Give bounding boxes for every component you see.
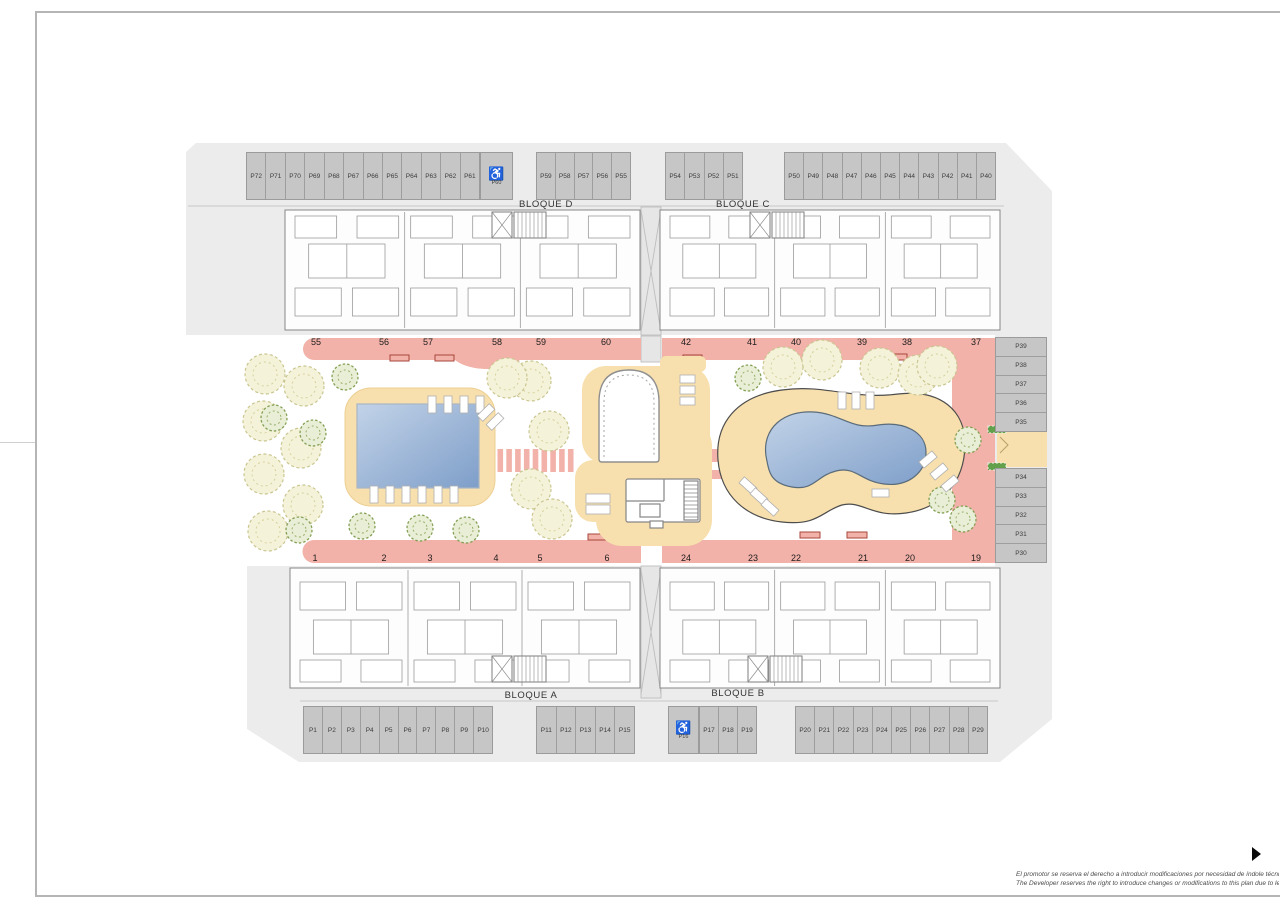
parking-stall-p71: P71 [265, 153, 284, 199]
sheet-frame-bottom [35, 895, 1280, 897]
parking-group-south-accessible: ♿P16 [668, 706, 699, 754]
parking-stall-label: P16 [679, 734, 689, 740]
bush-icon [929, 487, 955, 513]
parking-stall-p35: P35 [996, 412, 1046, 431]
parking-stall-p25: P25 [891, 707, 910, 753]
parking-stall-p46: P46 [861, 153, 880, 199]
parking-stall-p30: P30 [996, 543, 1046, 562]
plan-sheet-page: { "sheet": { "disclaimer_line1": "El pro… [0, 0, 1280, 907]
parking-group-south-small: P17P18P19 [699, 706, 757, 754]
parking-stall-p68: P68 [324, 153, 343, 199]
parking-stall-p20: P20 [796, 707, 814, 753]
unit-number-59: 59 [536, 337, 546, 347]
unit-number-22: 22 [791, 553, 801, 563]
parking-stall-p5: P5 [379, 707, 398, 753]
parking-stall-p23: P23 [853, 707, 872, 753]
arch-pavilion [599, 370, 659, 462]
parking-stall-p16: ♿P16 [669, 707, 698, 753]
bush-icon [735, 365, 761, 391]
wheelchair-icon: ♿ [675, 721, 691, 734]
unit-number-56: 56 [379, 337, 389, 347]
parking-stall-p53: P53 [684, 153, 703, 199]
building-bloque-b [660, 568, 1000, 688]
lounger-icon [852, 392, 860, 409]
unit-number-42: 42 [681, 337, 691, 347]
tree-icon [763, 347, 803, 387]
tree-icon [529, 411, 569, 451]
tree-icon [248, 511, 288, 551]
parking-stall-p29: P29 [968, 707, 987, 753]
walkway-south-west [303, 540, 642, 563]
parking-stall-p37: P37 [996, 375, 1046, 394]
parking-stall-p27: P27 [929, 707, 948, 753]
parking-stall-label: P60 [492, 180, 502, 186]
parking-stall-p1: P1 [304, 707, 322, 753]
parking-stall-p38: P38 [996, 356, 1046, 375]
unit-number-23: 23 [748, 553, 758, 563]
rect-pool [357, 404, 479, 488]
unit-number-6: 6 [604, 553, 609, 563]
bush-icon [453, 517, 479, 543]
parking-stall-p15: P15 [614, 707, 634, 753]
unit-number-39: 39 [857, 337, 867, 347]
parking-stall-p45: P45 [880, 153, 899, 199]
tree-icon [244, 454, 284, 494]
parking-stall-p34: P34 [996, 469, 1046, 487]
tree-icon [802, 340, 842, 380]
lounger-icon [586, 505, 610, 514]
parking-stall-p70: P70 [285, 153, 304, 199]
parking-stall-p39: P39 [996, 338, 1046, 356]
parking-group-east-lower: P34P33P32P31P30 [995, 468, 1047, 563]
parking-stall-p43: P43 [918, 153, 937, 199]
parking-stall-p26: P26 [910, 707, 929, 753]
parking-group-north-mid: P59P58P57P56P55 [536, 152, 631, 200]
sheet-frame-top [35, 11, 1280, 13]
lounger-icon [838, 392, 846, 409]
parking-stall-p9: P9 [454, 707, 473, 753]
parking-stall-p57: P57 [574, 153, 593, 199]
lounger-icon [680, 397, 695, 405]
parking-stall-p33: P33 [996, 487, 1046, 506]
unit-number-38: 38 [902, 337, 912, 347]
lounger-icon [428, 396, 436, 413]
parking-stall-p24: P24 [872, 707, 891, 753]
unit-number-37: 37 [971, 337, 981, 347]
parking-stall-p44: P44 [899, 153, 918, 199]
parking-stall-p28: P28 [949, 707, 968, 753]
next-arrow-icon[interactable] [1252, 847, 1261, 861]
unit-number-60: 60 [601, 337, 611, 347]
bush-icon [407, 515, 433, 541]
lounger-icon [386, 486, 394, 503]
disclaimer-es: El promotor se reserva el derecho a intr… [1016, 871, 1279, 880]
bush-icon [955, 427, 981, 453]
parking-stall-p49: P49 [803, 153, 822, 199]
pool-house [626, 479, 700, 528]
parking-stall-p63: P63 [421, 153, 440, 199]
disclaimer-en: The Developer reserves the right to intr… [1016, 880, 1279, 889]
unit-number-4: 4 [493, 553, 498, 563]
unit-number-58: 58 [492, 337, 502, 347]
tree-icon [532, 499, 572, 539]
tree-icon [284, 366, 324, 406]
parking-stall-p40: P40 [976, 153, 995, 199]
tree-icon [245, 354, 285, 394]
bush-icon [332, 364, 358, 390]
block-label-bloque-b: BLOQUE B [711, 688, 764, 699]
parking-stall-p60: ♿P60 [481, 153, 512, 199]
parking-group-south-west: P1P2P3P4P5P6P7P8P9P10 [303, 706, 493, 754]
parking-stall-p62: P62 [440, 153, 459, 199]
parking-stall-p19: P19 [737, 707, 756, 753]
parking-stall-p32: P32 [996, 506, 1046, 525]
lounger-icon [586, 494, 610, 503]
lounger-icon [418, 486, 426, 503]
tree-icon [917, 346, 957, 386]
parking-stall-p11: P11 [537, 707, 556, 753]
parking-stall-p64: P64 [401, 153, 420, 199]
parking-stall-p22: P22 [833, 707, 852, 753]
parking-stall-p3: P3 [341, 707, 360, 753]
unit-number-57: 57 [423, 337, 433, 347]
parking-group-east-upper: P39P38P37P36P35 [995, 337, 1047, 432]
parking-group-north-east: P50P49P48P47P46P45P44P43P42P41P40 [784, 152, 996, 200]
parking-stall-p67: P67 [343, 153, 362, 199]
unit-number-2: 2 [381, 553, 386, 563]
unit-number-1: 1 [312, 553, 317, 563]
parking-group-north-east-small: P54P53P52P51 [665, 152, 743, 200]
building-bloque-c [660, 210, 1000, 330]
lounger-icon [434, 486, 442, 503]
parking-stall-p56: P56 [592, 153, 611, 199]
lounger-icon [450, 486, 458, 503]
parking-stall-p4: P4 [360, 707, 379, 753]
unit-number-41: 41 [747, 337, 757, 347]
bush-icon [349, 513, 375, 539]
unit-number-3: 3 [427, 553, 432, 563]
parking-stall-p31: P31 [996, 524, 1046, 543]
unit-number-19: 19 [971, 553, 981, 563]
parking-stall-p65: P65 [382, 153, 401, 199]
lounger-icon [402, 486, 410, 503]
parking-stall-p54: P54 [666, 153, 684, 199]
building-bloque-a [290, 568, 640, 688]
parking-stall-p13: P13 [575, 707, 595, 753]
tree-icon [487, 358, 527, 398]
stepping-path [498, 449, 574, 472]
unit-number-24: 24 [681, 553, 691, 563]
parking-group-north-west: P72P71P70P69P68P67P66P65P64P63P62P61 [246, 152, 480, 200]
parking-stall-p48: P48 [822, 153, 841, 199]
wheelchair-icon: ♿ [488, 167, 504, 180]
parking-stall-p52: P52 [704, 153, 723, 199]
block-label-bloque-a: BLOQUE A [505, 690, 558, 701]
parking-stall-p47: P47 [842, 153, 861, 199]
unit-number-55: 55 [311, 337, 321, 347]
parking-stall-p14: P14 [595, 707, 615, 753]
parking-stall-p61: P61 [460, 153, 479, 199]
bush-icon [950, 506, 976, 532]
unit-number-21: 21 [858, 553, 868, 563]
parking-stall-p18: P18 [718, 707, 737, 753]
parking-stall-p10: P10 [473, 707, 492, 753]
parking-stall-p17: P17 [700, 707, 718, 753]
lounger-icon [872, 489, 889, 497]
block-label-bloque-c: BLOQUE C [716, 199, 770, 210]
bush-icon [300, 420, 326, 446]
parking-stall-p69: P69 [304, 153, 323, 199]
parking-stall-p7: P7 [416, 707, 435, 753]
parking-stall-p51: P51 [723, 153, 742, 199]
parking-stall-p21: P21 [814, 707, 833, 753]
lounger-icon [680, 375, 695, 383]
parking-stall-p72: P72 [247, 153, 265, 199]
parking-stall-p59: P59 [537, 153, 555, 199]
parking-stall-p42: P42 [938, 153, 957, 199]
bush-icon [286, 517, 312, 543]
lounger-icon [444, 396, 452, 413]
parking-group-south-east: P20P21P22P23P24P25P26P27P28P29 [795, 706, 988, 754]
lounger-icon [866, 392, 874, 409]
parking-stall-p2: P2 [322, 707, 341, 753]
site-plan-canvas [0, 0, 1280, 907]
parking-stall-p12: P12 [556, 707, 576, 753]
parking-stall-p55: P55 [611, 153, 630, 199]
parking-stall-p66: P66 [363, 153, 382, 199]
parking-group-south-mid: P11P12P13P14P15 [536, 706, 635, 754]
building-bloque-d [285, 210, 640, 330]
parking-stall-p50: P50 [785, 153, 803, 199]
unit-number-5: 5 [537, 553, 542, 563]
parking-stall-p36: P36 [996, 393, 1046, 412]
margin-tick [0, 442, 35, 443]
lounger-icon [680, 386, 695, 394]
parking-stall-p6: P6 [398, 707, 417, 753]
sheet-frame-left [35, 11, 37, 897]
unit-number-40: 40 [791, 337, 801, 347]
parking-stall-p58: P58 [555, 153, 574, 199]
parking-stall-p8: P8 [435, 707, 454, 753]
bush-icon [261, 405, 287, 431]
lounger-icon [460, 396, 468, 413]
parking-group-north-west-accessible: ♿P60 [480, 152, 513, 200]
tree-icon [860, 348, 900, 388]
block-label-bloque-d: BLOQUE D [519, 199, 573, 210]
parking-stall-p41: P41 [957, 153, 976, 199]
unit-number-20: 20 [905, 553, 915, 563]
lounger-icon [370, 486, 378, 503]
